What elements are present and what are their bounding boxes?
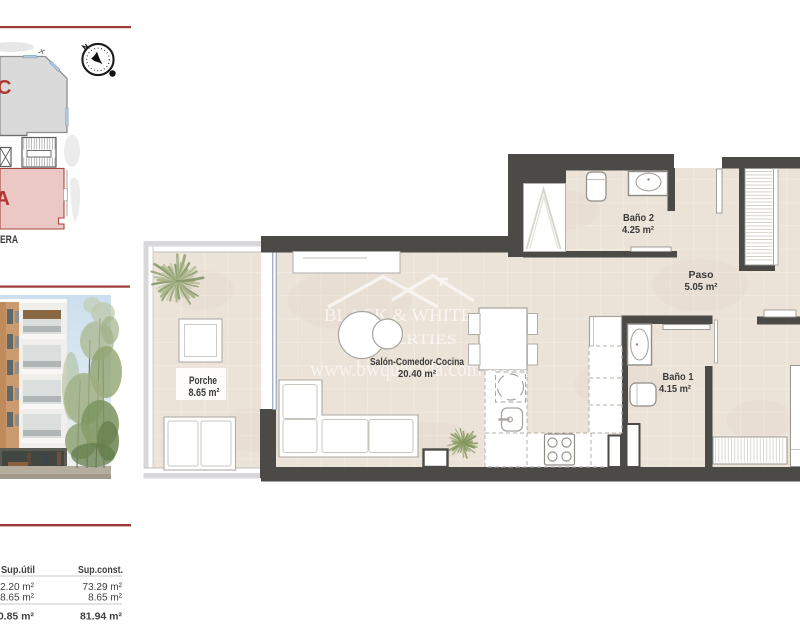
svg-text:Sup.const.: Sup.const. — [78, 564, 123, 576]
svg-text:81.94 m²: 81.94 m² — [80, 611, 123, 623]
svg-text:2.20 m²: 2.20 m² — [0, 582, 35, 593]
svg-text:0.85 m²: 0.85 m² — [0, 611, 35, 623]
svg-text:Sup.útil: Sup.útil — [1, 564, 35, 576]
svg-text:ERA: ERA — [0, 234, 18, 246]
svg-text:8.65 m²: 8.65 m² — [88, 593, 123, 604]
svg-text:C: C — [0, 77, 11, 99]
svg-text:8.65 m²: 8.65 m² — [0, 593, 35, 604]
svg-text:A: A — [0, 188, 10, 210]
svg-text:73.29 m²: 73.29 m² — [83, 582, 123, 593]
